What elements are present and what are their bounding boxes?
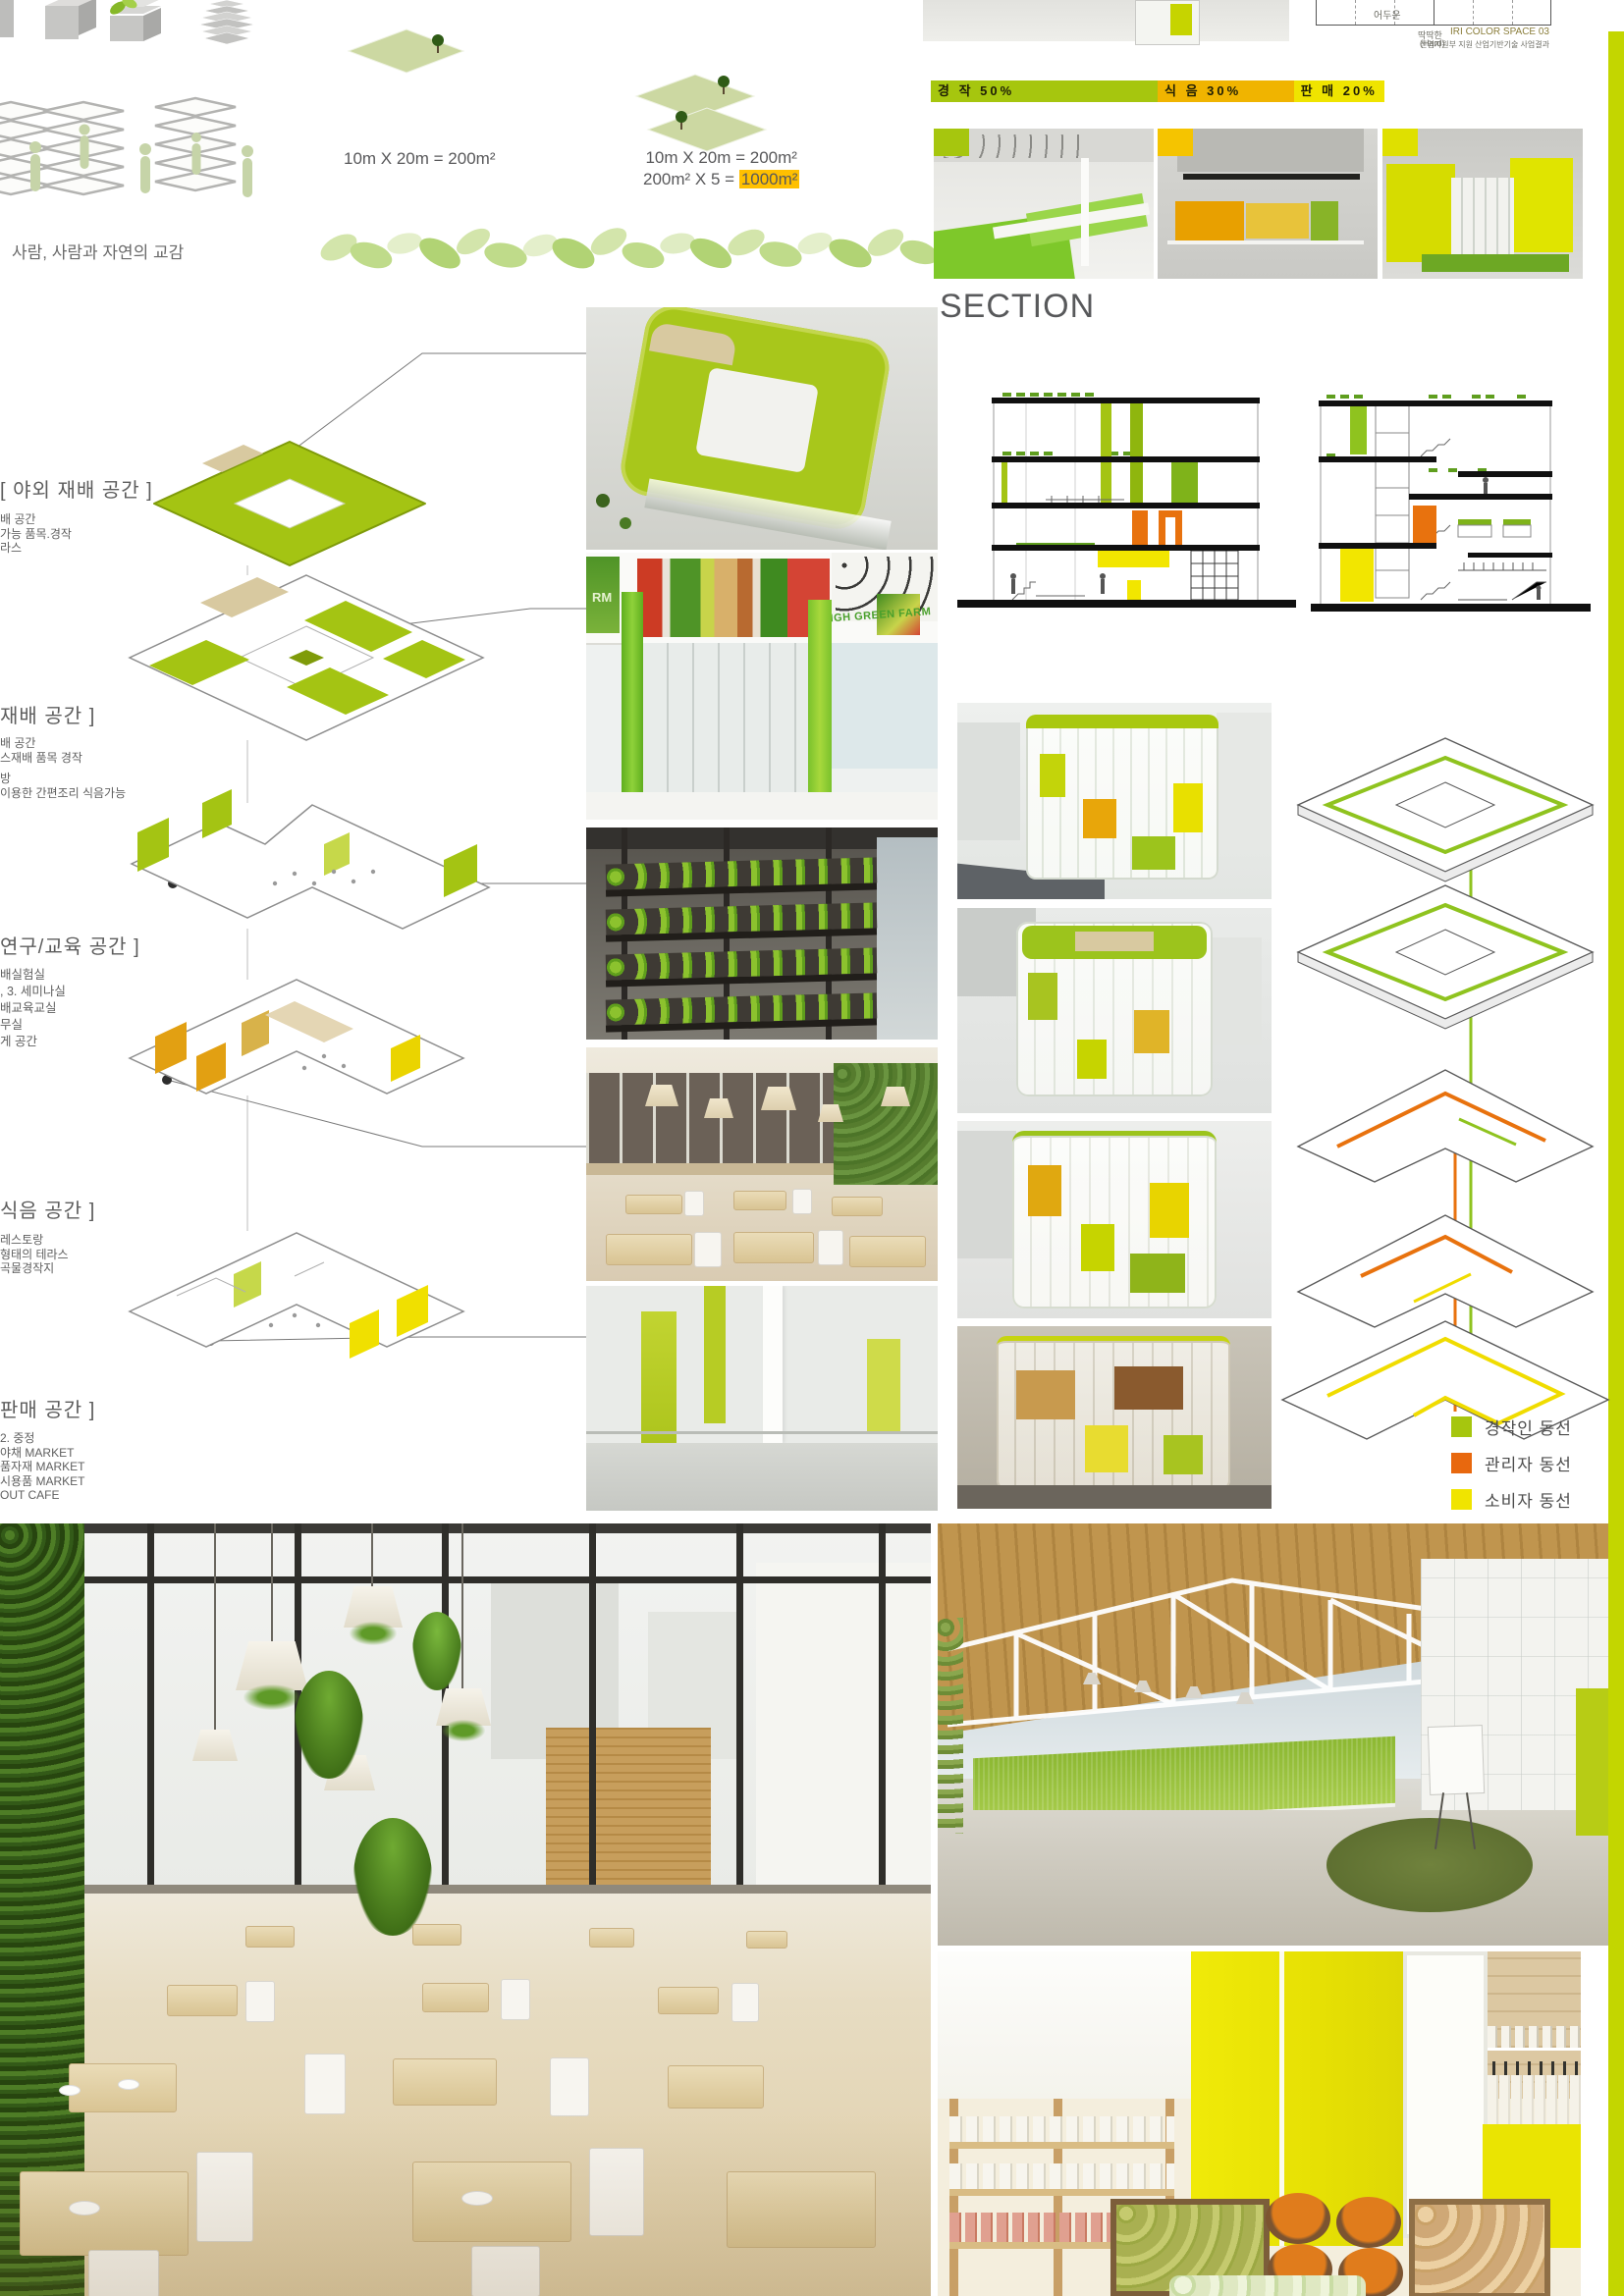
table [412, 1924, 461, 1946]
bar-segment-retail: 판 매 20% [1294, 80, 1384, 102]
plate-research [1298, 1070, 1593, 1182]
mullion [147, 1523, 154, 1889]
program-ratio-bar: 경 작 50% 식 음 30% 판 매 20% [931, 80, 1384, 102]
photo-restaurant-interior [586, 1047, 938, 1281]
railing [1167, 240, 1364, 244]
plant-rows [1002, 393, 1132, 546]
legend-swatch-consumer [1451, 1489, 1472, 1510]
lamp-cord [214, 1523, 216, 1730]
section-title: SECTION [940, 288, 1095, 326]
photo-farm-entrance: RM HIGH GREEN FARM [586, 553, 938, 820]
render-building-cutaway-4 [957, 1326, 1272, 1509]
legend-swatch-manager [1451, 1453, 1472, 1473]
iri-gridline [1512, 0, 1513, 25]
cropped-render-top [923, 0, 1289, 41]
street [957, 1485, 1272, 1509]
gold-room [1246, 203, 1309, 239]
mezzanine-rail [586, 1431, 938, 1434]
back-counter [586, 1163, 834, 1175]
area-line-2: 200m² X 5 = [643, 170, 739, 188]
panel [1150, 1183, 1189, 1238]
space-title: 식음 공간 ] [0, 1195, 177, 1223]
window-light [938, 1951, 1191, 2099]
basket-carrots [1266, 2193, 1330, 2244]
panel [1173, 783, 1203, 832]
plate-cultivation [1298, 885, 1593, 1029]
space-line: 레스토랑 [0, 1233, 177, 1248]
space-line: 배 공간 [0, 736, 177, 751]
plate-roof [1298, 738, 1593, 881]
floor [586, 1443, 938, 1511]
jar-row [949, 2116, 1174, 2142]
yellow-room [1340, 549, 1374, 602]
space-line: OUT CAFE [0, 1488, 177, 1503]
chair [550, 2057, 589, 2116]
mullion [589, 1523, 596, 1889]
market-shelves [1458, 562, 1546, 600]
stacked-plates-diagram [636, 75, 766, 151]
space-line: 형태의 테라스 [0, 1248, 177, 1262]
circulation-axon-diagram [1267, 687, 1624, 1453]
chair [694, 1232, 722, 1267]
white-column [763, 1286, 783, 1443]
chair [684, 1191, 704, 1216]
plate-dining [1298, 1215, 1593, 1327]
inner-courtyard [695, 367, 819, 473]
orange-room [1132, 510, 1148, 545]
upper-volume [1177, 129, 1364, 172]
foliage-edge [938, 1618, 963, 1834]
space-line: 야채 MARKET [0, 1446, 177, 1461]
white-wall [756, 1563, 931, 1887]
iri-gridline [1434, 0, 1435, 25]
lamp-cord [371, 1523, 373, 1586]
render-building-cutaway-2 [957, 908, 1272, 1113]
iri-credit: 산업자원부 지원 산업기반기술 사업결과 [1420, 39, 1549, 50]
chair [792, 1189, 812, 1214]
chair [501, 1979, 530, 2020]
site-plate-diagram [349, 29, 463, 73]
chair [731, 1983, 759, 2022]
space-label-cultivation: 재배 공간 ] 배 공간 스재배 품목 경작 방 이용한 간편조리 식음가능 [0, 700, 177, 800]
table [733, 1232, 814, 1263]
axon-cube-face [1170, 4, 1192, 35]
basket-carrots [1336, 2197, 1401, 2248]
panel [1040, 754, 1065, 797]
table [832, 1197, 883, 1216]
axon-research-floor [132, 789, 489, 929]
panel [1028, 1165, 1061, 1216]
glass-wall [1451, 178, 1514, 262]
panel [1130, 1254, 1185, 1293]
bg-building [957, 1131, 1016, 1258]
axon-roof-plate [154, 442, 425, 565]
table [658, 1987, 719, 2014]
vegetable-banner [637, 559, 830, 637]
dark-band [1183, 174, 1360, 180]
space-line: 스재배 품목 경작 [0, 751, 177, 766]
wood-slat-screen [546, 1728, 711, 1887]
roof-band [1026, 715, 1218, 728]
space-label-retail: 판매 공간 ] 2. 중정 야채 MARKET 품자재 MARKET 시용품 M… [0, 1394, 177, 1503]
table [245, 1926, 295, 1948]
round-dais [1326, 1818, 1533, 1912]
shelf-board [949, 2142, 1174, 2149]
render-courtyard-grass [934, 129, 1154, 279]
legend-label: 관리자 동선 [1485, 1451, 1572, 1475]
bar-segment-cultivation: 경 작 50% [931, 80, 1158, 102]
banner-left: RM [586, 557, 620, 633]
table [668, 2065, 764, 2109]
corner-tag [1158, 129, 1193, 156]
photo-greenhouse [938, 1523, 1608, 1946]
mullion [736, 1523, 743, 1889]
legend-label: 소비자 동선 [1485, 1487, 1572, 1512]
panel [1077, 1040, 1107, 1079]
iri-grid: 어두운 [1316, 0, 1551, 26]
white-door [1403, 1951, 1488, 2238]
render-building-cutaway-3 [957, 1121, 1272, 1318]
table [606, 1234, 692, 1265]
chair [304, 2054, 346, 2114]
space-title: [ 야외 재배 공간 ] [0, 474, 177, 503]
yellow-panel [1510, 158, 1573, 252]
area-highlight: 1000m² [739, 170, 800, 188]
space-line: 품자재 MARKET [0, 1460, 177, 1474]
glass-back [832, 643, 938, 769]
area-line-1: 10m X 20m = 200m² [645, 148, 797, 167]
legend-item-farmer: 경작인 동선 [1451, 1415, 1572, 1439]
iri-color-chart: 어두운 IRI COLOR SPACE 03 딱딱한 (Hard) 산업자원부 … [1316, 0, 1551, 49]
hedge [1422, 254, 1569, 272]
space-label-dining: 식음 공간 ] 레스토랑 형태의 테라스 곡물경작지 [0, 1195, 177, 1276]
space-line: , 3. 세미나실 [0, 984, 177, 1000]
bar-label-dining: 식 음 30% [1164, 83, 1241, 98]
space-label-research-education: 연구/교육 공간 ] 배실험실 , 3. 세미나실 배교육교실 무실 게 공간 [0, 931, 177, 1050]
window [877, 837, 938, 1040]
table [733, 1191, 786, 1210]
stair-shaft [1376, 405, 1409, 598]
jar-row [949, 2163, 1174, 2189]
presentation-board: 사람, 사람과 자연의 교감 10m X 20m = 200m² 10m X 2… [0, 0, 1624, 2296]
glass-cube [997, 1336, 1230, 1490]
wood-interior [1114, 1366, 1183, 1410]
space-title: 재배 공간 ] [0, 700, 177, 728]
space-line: 무실 [0, 1017, 177, 1034]
bar-label-cultivation: 경 작 50% [938, 83, 1014, 98]
legend-item-consumer: 소비자 동선 [1451, 1487, 1572, 1512]
window-beam [84, 1576, 931, 1583]
concept-caption: 사람, 사람과 자연의 교감 [12, 239, 184, 263]
panel [1085, 1425, 1128, 1472]
render-building-cutaway-1 [957, 703, 1272, 899]
floor-slabs [957, 398, 1296, 608]
table [849, 1236, 926, 1267]
plate [59, 2085, 81, 2096]
panel [1164, 1435, 1203, 1474]
tree [620, 517, 631, 529]
photo-vertical-farm [586, 828, 938, 1040]
chartreuse-panel [867, 1339, 900, 1433]
tower-diagrams [0, 0, 254, 44]
green-wall [1171, 462, 1198, 503]
leaf-border-graphic [316, 222, 941, 274]
shelf-board [949, 2189, 1174, 2196]
chair [245, 1981, 275, 2022]
orange-room [1413, 506, 1436, 543]
panel [1028, 973, 1057, 1020]
glass-cube [1016, 922, 1213, 1096]
sign-board [1428, 1725, 1485, 1795]
bg-building [1217, 713, 1272, 850]
hanging-plant-mass [295, 1671, 363, 1779]
space-title: 연구/교육 공간 ] [0, 931, 177, 959]
legend-label: 경작인 동선 [1485, 1415, 1572, 1439]
table [625, 1195, 682, 1214]
plant-wall [834, 1063, 938, 1185]
sill [0, 1885, 931, 1894]
render-atrium-orange [1158, 129, 1378, 279]
table [589, 1928, 634, 1948]
corner-tag [934, 129, 969, 156]
lamp-cord [271, 1523, 273, 1641]
yellow-band [1098, 551, 1169, 567]
plate [118, 2079, 139, 2090]
jar-shelf [1488, 2026, 1581, 2048]
axon-dining-floor [130, 980, 463, 1094]
green-slab [1576, 1688, 1608, 1836]
photo-white-atrium [586, 1286, 938, 1511]
space-title: 판매 공간 ] [0, 1394, 177, 1422]
section-drawing-right [1311, 378, 1591, 618]
iri-gridline [1355, 0, 1356, 25]
bottle-row [1488, 2075, 1581, 2124]
lamp-cord [461, 1523, 463, 1688]
iri-gridline [1473, 0, 1474, 25]
legend-item-manager: 관리자 동선 [1451, 1451, 1572, 1475]
plant-tuft [244, 1684, 300, 1710]
panel [1134, 1010, 1169, 1053]
hanging-plant-mass [412, 1612, 461, 1690]
legend-swatch-farmer [1451, 1416, 1472, 1437]
chartreuse-slab [704, 1286, 726, 1423]
space-line: 곡물경작지 [0, 1261, 177, 1276]
grille [1191, 551, 1238, 600]
iri-source: IRI COLOR SPACE 03 [1450, 27, 1549, 37]
space-line: 배교육교실 [0, 1000, 177, 1017]
mullion [879, 1523, 886, 1889]
glass-cube [1026, 715, 1218, 880]
green-column [1101, 403, 1111, 503]
wood-interior [1016, 1370, 1075, 1419]
table [422, 1983, 489, 2012]
window-head [84, 1523, 931, 1533]
table [746, 1931, 787, 1949]
floor [586, 792, 938, 820]
plant-tuft [350, 1622, 397, 1645]
window-wall [586, 1073, 834, 1169]
space-line: 시용품 MARKET [0, 1474, 177, 1489]
chartreuse-panel [1386, 164, 1455, 262]
section-drawing-left [957, 378, 1296, 618]
bar-segment-dining: 식 음 30% [1158, 80, 1294, 102]
space-line: 방 [0, 772, 177, 786]
axon-cultivation-floor [130, 575, 483, 740]
space-line: 라스 [0, 541, 177, 556]
space-line: 게 공간 [0, 1034, 177, 1050]
bar-label-retail: 판 매 20% [1301, 83, 1378, 98]
banner-partial-text: RM [592, 590, 612, 605]
photo-market [938, 1951, 1581, 2296]
plant-tuft [442, 1720, 485, 1741]
column [1081, 158, 1089, 266]
area-note-right: 10m X 20m = 200m² 200m² X 5 = 1000m² [643, 147, 799, 190]
green-column [622, 592, 643, 820]
chair [818, 1230, 843, 1265]
photo-restaurant-large [0, 1523, 931, 2296]
green-column [1350, 405, 1367, 454]
area-note-left: 10m X 20m = 200m² [344, 149, 496, 169]
green-column [808, 600, 832, 820]
tree [596, 494, 610, 507]
panel [1083, 799, 1116, 838]
orange-room [1175, 201, 1244, 240]
planter-boxes [1458, 519, 1531, 537]
space-label-outdoor-cultivation: [ 야외 재배 공간 ] 배 공간 가능 품목.경작 라스 [0, 474, 177, 556]
shelf-board [1488, 2048, 1581, 2051]
fresh-vegetables [1169, 2275, 1366, 2296]
space-line: 배 공간 [0, 512, 177, 527]
table [167, 1985, 238, 2016]
panel [1132, 836, 1175, 870]
hanging-plant-mass [353, 1818, 432, 1936]
render-interior-chartreuse [1382, 129, 1583, 279]
space-line: 이용한 간편조리 식음가능 [0, 786, 177, 801]
glass-cube [1012, 1131, 1217, 1308]
space-line: 2. 중정 [0, 1431, 177, 1446]
roof-deck [1075, 932, 1154, 951]
corner-tag [1382, 129, 1418, 156]
table [393, 2058, 497, 2106]
photo-roof-aerial [586, 307, 938, 550]
space-line: 가능 품목.경작 [0, 527, 177, 542]
iri-cell-label: 어두운 [1374, 7, 1401, 22]
people-marks [1010, 573, 1106, 594]
bg-building [957, 722, 1020, 840]
crate-onions [1409, 2199, 1550, 2296]
small-building-axon [1115, 0, 1218, 49]
green-column [1130, 403, 1143, 503]
floor-shade [0, 2112, 931, 2296]
space-line: 배실험실 [0, 967, 177, 984]
green-room [1311, 201, 1338, 240]
panel [1081, 1224, 1114, 1271]
